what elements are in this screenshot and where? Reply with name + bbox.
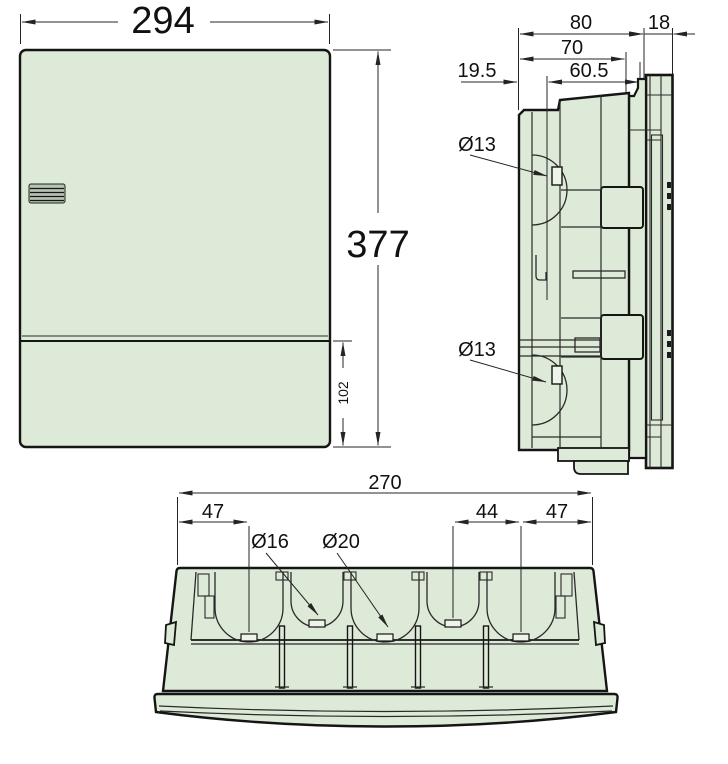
din-boss-lower [601,315,643,359]
bottom-view: 270 47 44 47 Ø16 Ø20 [154,472,617,727]
bottom-housing-body [163,568,607,691]
dimension-44: 44 [455,501,519,523]
bottom-flange [154,694,617,727]
din-boss-upper [601,187,643,228]
dimension-80: 80 [520,12,643,34]
dimension-19-5: 19.5 [458,60,517,82]
lower-section-height-label: 102 [335,381,351,405]
front-panel [20,50,330,447]
dimension-18: 18 [624,12,695,34]
bottom-width-label: 270 [368,472,401,494]
enclosure-dimension-drawing: 294 377 102 [0,0,728,764]
front-width-label: 294 [131,0,194,42]
side-bottom-lug [558,448,629,461]
dimension-47-right: 47 [523,501,591,523]
back-offset-label: 19.5 [458,60,497,82]
side-ear-right [594,622,605,645]
side-bottom-foot [574,461,628,474]
front-view: 294 377 102 [20,0,414,447]
dimension-270: 270 [179,472,591,494]
edge-to-first-knockout-label: 47 [202,501,224,523]
dimension-60-5: 60.5 [549,60,639,82]
dimension-294: 294 [21,0,330,44]
vent-grille [29,184,65,203]
side-ear-left [165,622,176,645]
depth-inner-label: 70 [561,37,583,59]
knockout-diameter-label-lower: Ø13 [458,339,496,361]
depth-overall-label: 80 [570,12,592,34]
knockout-membrane-upper [552,167,562,185]
dimension-70: 70 [520,37,625,59]
technical-drawing-page: 294 377 102 [0,0,728,764]
knockout-diameter-label-upper: Ø13 [458,134,496,156]
dimension-47-left: 47 [179,501,247,523]
last-knockout-to-edge-label: 47 [546,501,568,523]
side-view: 80 18 70 19.5 60.5 Ø13 Ø13 [458,12,695,474]
knockout-small-label: Ø16 [251,531,289,553]
front-height-label: 377 [346,224,409,266]
knockout-membrane-lower [552,366,562,384]
inner-offset-label: 60.5 [570,60,609,82]
dimension-102: 102 [333,341,352,446]
side-frame-plate [629,79,646,458]
knockout-large-label: Ø20 [322,531,360,553]
front-protrusion-label: 18 [648,12,670,34]
knockout-spacing-label: 44 [476,501,498,523]
